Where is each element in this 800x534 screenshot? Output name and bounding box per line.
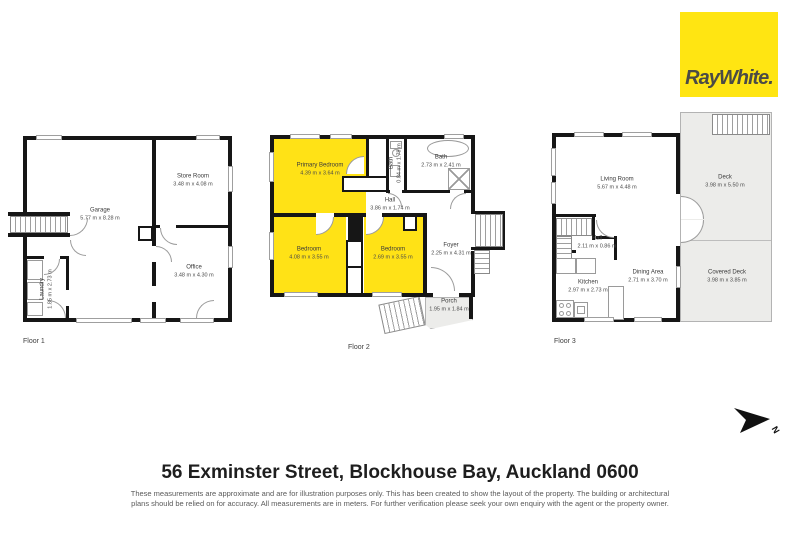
door-arc bbox=[196, 300, 214, 318]
exterior-stairs bbox=[378, 296, 425, 334]
window bbox=[584, 317, 614, 322]
window bbox=[290, 134, 320, 139]
window bbox=[284, 292, 318, 297]
window bbox=[622, 132, 652, 137]
raywhite-logo-text: RayWhite. bbox=[685, 67, 773, 97]
stove-burner bbox=[559, 311, 564, 316]
kitchen-peninsula bbox=[608, 286, 624, 320]
window bbox=[269, 152, 274, 182]
door-gap bbox=[152, 286, 156, 302]
kitchen-counter bbox=[556, 258, 576, 274]
window bbox=[140, 318, 166, 323]
wall bbox=[552, 214, 596, 217]
closet-divider bbox=[346, 266, 363, 268]
wall bbox=[471, 135, 475, 213]
window bbox=[228, 166, 233, 192]
wall bbox=[469, 297, 473, 319]
room-label-store-room: Store Room 3.48 m x 4.08 m bbox=[173, 174, 212, 189]
room-label-bedroom-right: Bedroom 2.69 m x 3.55 m bbox=[373, 247, 412, 262]
room-label-deck: Deck 3.98 m x 5.50 m bbox=[705, 175, 744, 190]
window bbox=[551, 148, 556, 176]
wardrobe bbox=[342, 176, 388, 192]
shower bbox=[448, 168, 470, 190]
north-label: N bbox=[770, 425, 782, 436]
kitchen-counter bbox=[576, 258, 596, 274]
stove-burner bbox=[566, 311, 571, 316]
room-label-bedroom-left: Bedroom 4.08 m x 3.55 m bbox=[289, 247, 328, 262]
door-gap bbox=[66, 290, 69, 306]
window bbox=[269, 232, 274, 260]
wall bbox=[66, 256, 69, 322]
property-address: 56 Exminster Street, Blockhouse Bay, Auc… bbox=[0, 462, 800, 484]
door-arc bbox=[156, 246, 172, 262]
disclaimer-text: These measurements are approximate and a… bbox=[130, 489, 670, 509]
stove-burner bbox=[566, 303, 571, 308]
deck-stairs bbox=[712, 114, 770, 135]
window bbox=[634, 317, 662, 322]
room-label-garage: Garage 5.77 m x 8.28 m bbox=[80, 208, 119, 223]
wall bbox=[348, 217, 363, 242]
front-door-arc bbox=[431, 267, 455, 291]
window bbox=[180, 318, 214, 323]
room-label-bath-small: Bath 0.84 m x 1.79 m bbox=[389, 143, 404, 182]
room-label-kitchen: Kitchen 2.97 m x 2.73 m bbox=[568, 280, 607, 295]
wall bbox=[366, 137, 369, 178]
room-label-hall: Hall 2.11 m x 0.86 m bbox=[577, 236, 616, 251]
floor1-tag: Floor 1 bbox=[23, 338, 45, 345]
wall bbox=[552, 133, 680, 137]
room-label-hall: Hall 3.86 m x 1.74 m bbox=[370, 198, 409, 213]
window bbox=[574, 132, 604, 137]
closet bbox=[403, 215, 417, 231]
window bbox=[551, 182, 556, 204]
window bbox=[372, 292, 402, 297]
stove bbox=[556, 300, 574, 318]
raywhite-logo: RayWhite. bbox=[680, 12, 778, 97]
deck-divider bbox=[681, 240, 771, 241]
closet bbox=[138, 226, 153, 241]
door-arc bbox=[70, 240, 86, 256]
stove-burner bbox=[559, 303, 564, 308]
door-arc bbox=[450, 193, 466, 209]
room-label-office: Office 3.48 m x 4.30 m bbox=[174, 265, 213, 280]
door-gap bbox=[676, 194, 680, 246]
window bbox=[36, 135, 62, 140]
room-label-bath: Bath 2.73 m x 2.41 m bbox=[421, 155, 460, 170]
kitchen-sink bbox=[577, 306, 585, 314]
north-arrow: N bbox=[730, 402, 788, 444]
stairs bbox=[475, 214, 503, 247]
wall bbox=[8, 233, 70, 237]
window bbox=[444, 134, 464, 139]
room-label-laundry: Laundry 1.85 m x 2.73 m bbox=[40, 269, 55, 308]
floorplan-page: RayWhite. bbox=[0, 0, 800, 534]
north-arrow-glyph bbox=[734, 408, 770, 433]
stairs bbox=[474, 250, 490, 274]
wall bbox=[228, 136, 232, 322]
window bbox=[676, 266, 681, 288]
room-label-dining-area: Dining Area 2.71 m x 3.70 m bbox=[628, 270, 667, 285]
window bbox=[196, 135, 220, 140]
stairs bbox=[10, 216, 68, 233]
room-label-living-room: Living Room 5.67 m x 4.48 m bbox=[597, 177, 636, 192]
wall bbox=[8, 212, 70, 216]
stairs bbox=[556, 218, 592, 236]
room-label-foyer: Foyer 2.25 m x 4.31 m bbox=[431, 243, 470, 258]
garage-door bbox=[76, 318, 132, 323]
room-label-covered-deck: Covered Deck 3.98 m x 3.85 m bbox=[707, 270, 746, 285]
window bbox=[330, 134, 352, 139]
wall bbox=[404, 137, 407, 190]
door-arc bbox=[160, 228, 177, 245]
room-label-porch: Porch 1.95 m x 1.84 m bbox=[429, 299, 468, 314]
wall bbox=[23, 136, 27, 214]
window bbox=[228, 246, 233, 268]
floor2-tag: Floor 2 bbox=[348, 344, 370, 351]
floor3-tag: Floor 3 bbox=[554, 338, 576, 345]
wall bbox=[423, 213, 427, 297]
room-label-primary-bedroom: Primary Bedroom 4.39 m x 3.64 m bbox=[297, 163, 344, 178]
